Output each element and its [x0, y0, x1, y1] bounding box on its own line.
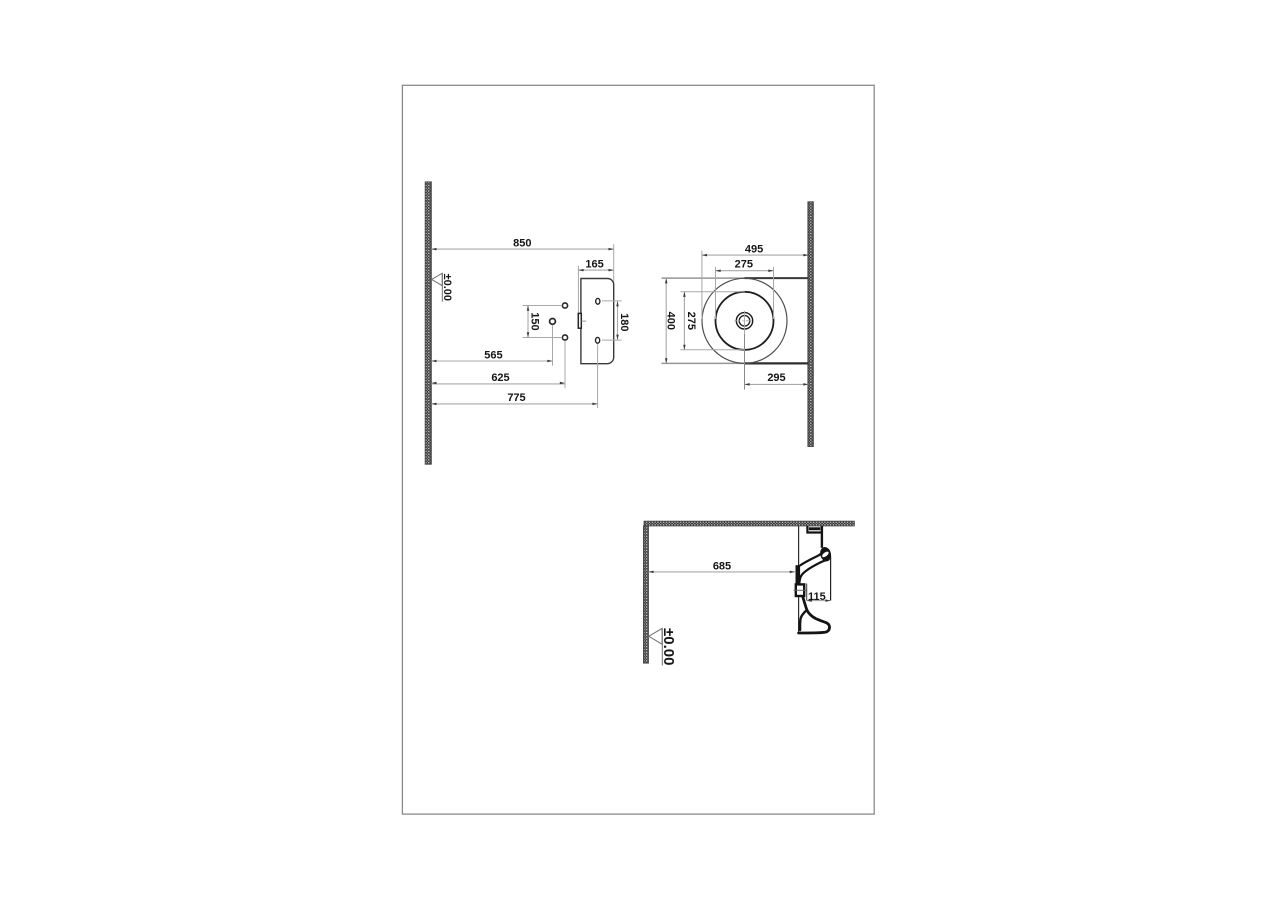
svg-text:850: 850 [513, 237, 531, 249]
svg-text:295: 295 [767, 372, 785, 384]
svg-text:685: 685 [713, 560, 731, 572]
svg-text:275: 275 [685, 312, 697, 330]
svg-text:±0.00: ±0.00 [660, 628, 677, 665]
svg-text:565: 565 [484, 349, 502, 361]
svg-text:625: 625 [491, 372, 509, 384]
svg-text:115: 115 [808, 591, 826, 603]
svg-text:495: 495 [745, 244, 763, 256]
svg-text:180: 180 [618, 313, 630, 331]
svg-text:775: 775 [507, 392, 525, 404]
svg-text:400: 400 [664, 312, 676, 330]
svg-text:275: 275 [735, 259, 753, 271]
svg-text:165: 165 [585, 258, 603, 270]
svg-text:150: 150 [528, 312, 540, 330]
svg-text:±0.00: ±0.00 [441, 274, 453, 301]
